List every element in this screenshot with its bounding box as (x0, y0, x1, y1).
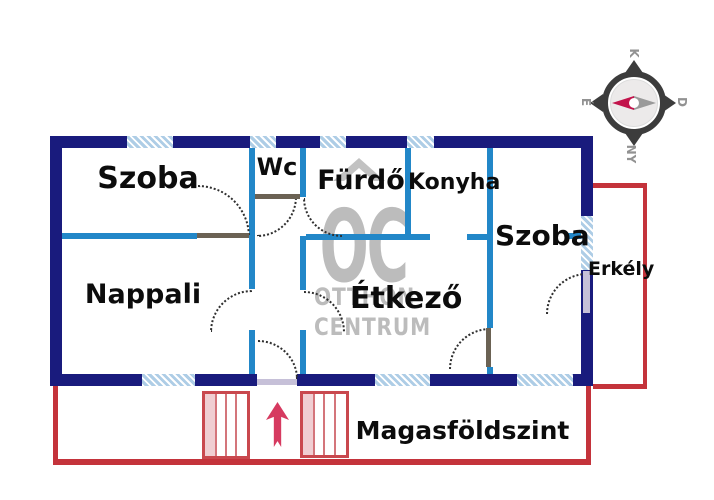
porch-outline-bottom (53, 459, 591, 465)
entrance-door-sill (257, 379, 297, 385)
stairs-left (202, 391, 250, 459)
stairs-right-shade (303, 394, 313, 455)
window-top-1 (127, 136, 173, 148)
room-label-szoba-tl: Szoba (68, 163, 228, 195)
door-arc-erkely (546, 273, 587, 314)
room-label-szoba-r: Szoba (495, 221, 581, 250)
room-label-etkezo: Étkező (350, 283, 450, 315)
room-label-nappali: Nappali (60, 281, 226, 309)
porch-outline-right (586, 386, 591, 465)
compass-label-top: K (627, 42, 641, 64)
window-top-2 (250, 136, 276, 148)
room-label-wc: Wc (254, 155, 300, 180)
room-label-konyha: Konyha (408, 171, 490, 194)
stairs-left-shade (205, 394, 215, 456)
balcony-outline-right (643, 183, 647, 389)
floor-label: Magasföldszint (345, 418, 580, 444)
wall-furdo-etkezo (306, 234, 430, 240)
window-top-4 (407, 136, 434, 148)
door-arc-entrance (258, 340, 298, 379)
porch-outline-left (53, 386, 58, 465)
door-leaf-szoba-tl (197, 233, 249, 238)
door-arc-furdo (303, 198, 342, 237)
entrance-arrow-icon (266, 402, 289, 447)
window-bottom-1 (142, 374, 195, 386)
window-bottom-3 (517, 374, 573, 386)
door-leaf-wc (255, 194, 300, 199)
compass-label-left: É (579, 91, 593, 113)
wall-corridor-right-upper (300, 148, 306, 197)
wall-szoba-nappali-divider (62, 233, 197, 239)
room-label-erkely: Erkély (588, 260, 650, 280)
stairs-right (300, 391, 349, 458)
window-top-3 (320, 136, 346, 148)
wall-corridor-right-middle (300, 236, 306, 290)
outer-wall-left (50, 136, 62, 386)
wall-corridor-left-lower (249, 330, 255, 374)
compass-label-bottom: NY (624, 143, 638, 165)
window-bottom-2 (375, 374, 430, 386)
compass-label-right: D (675, 91, 689, 113)
outer-wall-bottom (50, 374, 593, 386)
balcony-outline-bottom (593, 384, 647, 389)
door-arc-szoba-r (449, 328, 490, 369)
room-label-furdo: Fürdő (316, 167, 406, 195)
balcony-outline-top (593, 183, 647, 188)
wall-corridor-right-lower (300, 330, 306, 374)
floorplan-canvas: OC OTTHON CENTRUM Szoba Wc Fürdő Konyha … (0, 0, 714, 500)
door-arc-wc (257, 197, 297, 237)
compass-center-dot (629, 98, 639, 108)
door-leaf-szoba-r (486, 328, 491, 367)
